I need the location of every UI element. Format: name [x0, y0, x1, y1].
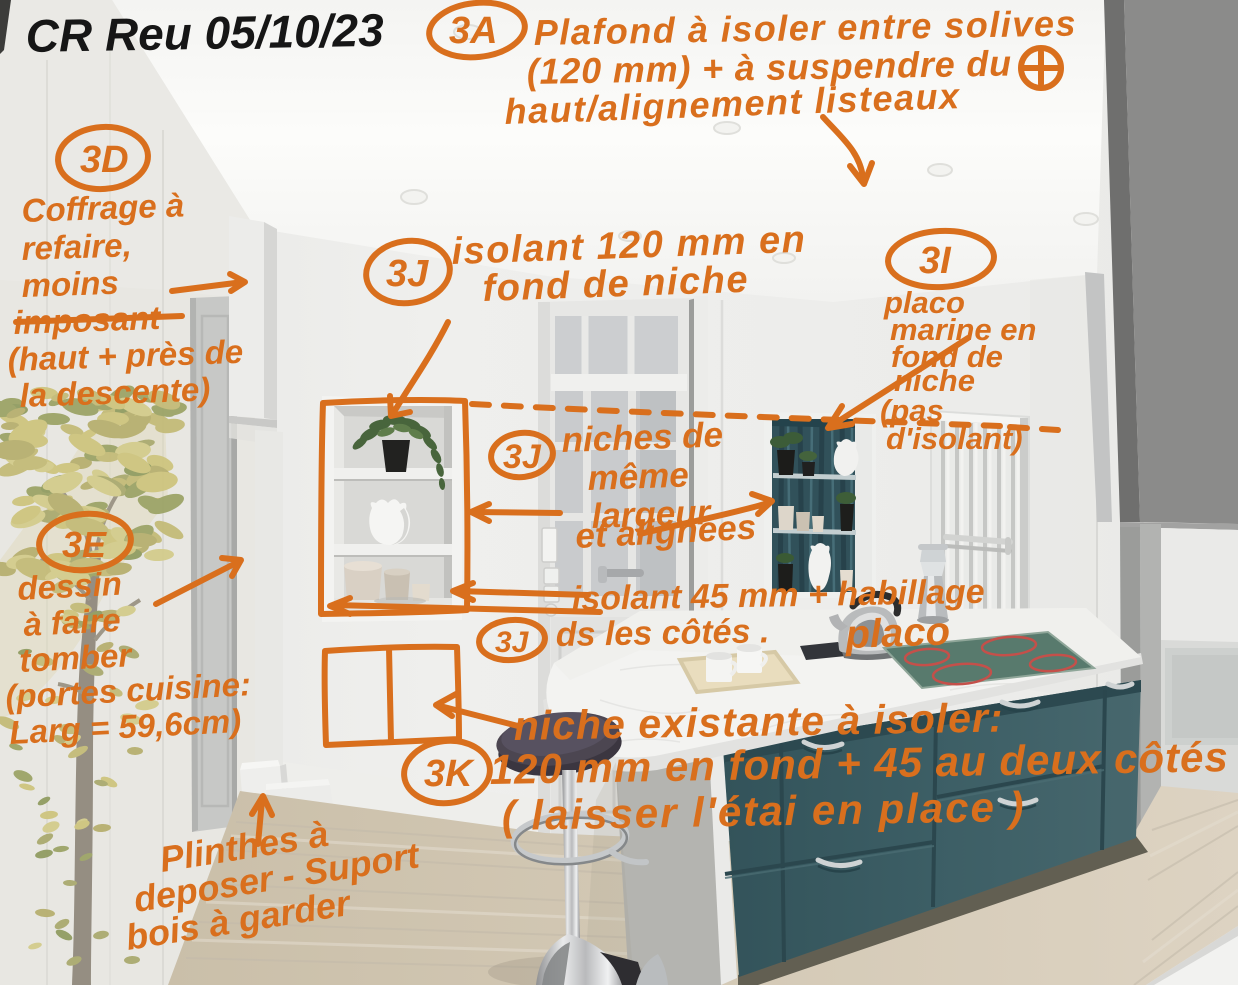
- svg-text:3K: 3K: [424, 753, 475, 795]
- svg-text:CR Reu 05/10/23: CR Reu 05/10/23: [25, 4, 384, 62]
- svg-text:la descente): la descente): [19, 370, 211, 414]
- svg-text:3A: 3A: [449, 10, 498, 52]
- svg-text:d'isolant): d'isolant): [886, 421, 1023, 456]
- svg-text:3D: 3D: [80, 139, 129, 181]
- svg-text:niches de: niches de: [561, 415, 724, 460]
- svg-text:3J: 3J: [503, 438, 542, 476]
- svg-text:3J: 3J: [495, 626, 530, 659]
- svg-text:ds les côtés .: ds les côtés .: [555, 612, 769, 654]
- svg-text:même: même: [587, 455, 689, 498]
- svg-text:imposant: imposant: [13, 299, 163, 341]
- svg-text:refaire,: refaire,: [21, 226, 132, 267]
- svg-text:Coffrage à: Coffrage à: [21, 186, 185, 229]
- svg-text:( laisser l'étai en place ): ( laisser l'étai en place ): [501, 783, 1026, 839]
- svg-text:3E: 3E: [62, 524, 107, 565]
- svg-text:dessin: dessin: [16, 565, 122, 607]
- svg-text:moins: moins: [21, 264, 119, 304]
- svg-text:3J: 3J: [386, 253, 429, 295]
- svg-text:3I: 3I: [919, 240, 952, 282]
- svg-text:placo: placo: [844, 609, 951, 657]
